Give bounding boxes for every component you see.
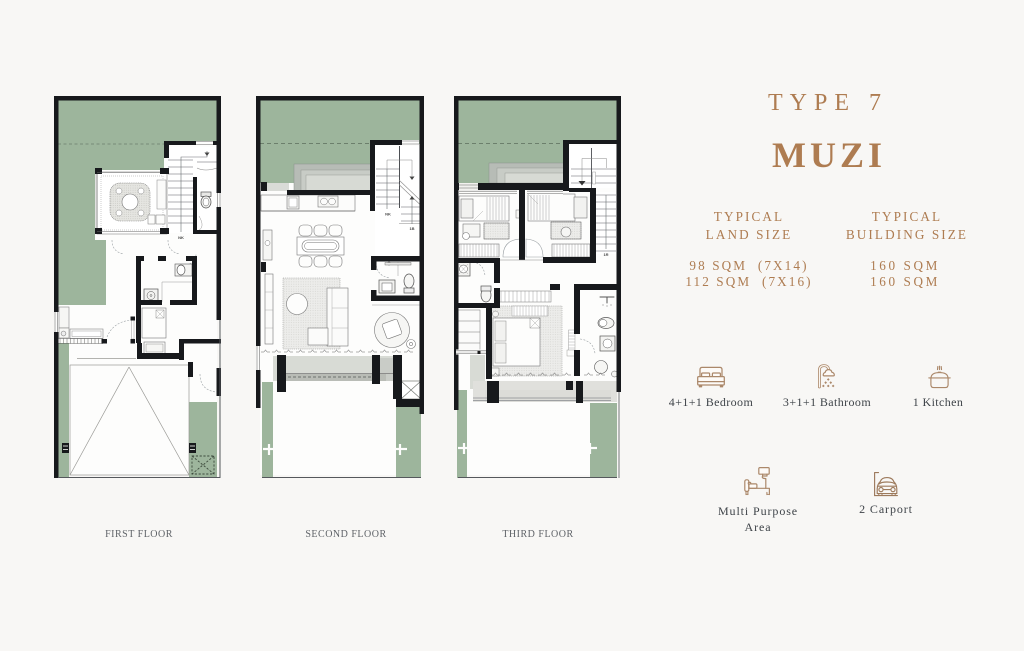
svg-text:1B: 1B [409,226,414,231]
svg-text:1R: 1R [603,252,608,257]
svg-text:NK: NK [178,235,184,240]
svg-text:NK: NK [385,212,391,217]
